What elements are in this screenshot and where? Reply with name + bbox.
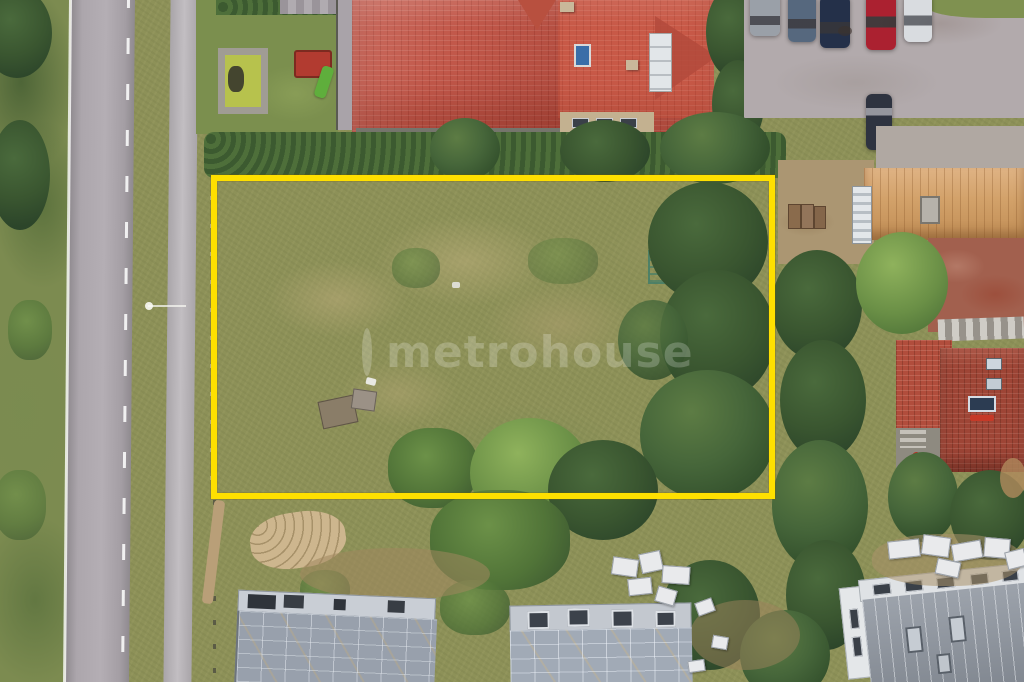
building-material-stack	[638, 550, 664, 574]
chimney	[560, 2, 574, 12]
roof-slope	[234, 611, 437, 682]
parked-car-silver	[750, 0, 780, 36]
watermark-text: metrohouse	[386, 327, 694, 378]
gravel-dark-spot	[838, 26, 852, 36]
paver-strip	[280, 0, 338, 14]
construction-building-left	[234, 590, 438, 682]
building-material-stack	[661, 565, 690, 585]
dry-shrub	[1000, 458, 1024, 498]
watermark: metrohouse	[362, 326, 662, 378]
roof-opening	[333, 599, 345, 611]
sidewalk-path	[163, 0, 198, 682]
roof-window	[986, 378, 1002, 390]
pallet-stack	[801, 204, 814, 229]
bush	[8, 300, 52, 360]
parked-car-white	[904, 0, 932, 42]
wall-window	[872, 583, 891, 596]
bush	[0, 470, 46, 540]
roof-slope	[510, 627, 693, 682]
orange-roof-house	[864, 168, 1024, 240]
roof-window	[527, 611, 549, 629]
building-material-stack	[1004, 548, 1024, 570]
roof-window	[567, 608, 589, 626]
patio-steps	[900, 430, 926, 448]
pallet-stack	[788, 204, 801, 229]
gravel-strip	[876, 126, 1024, 170]
building-material-stack	[611, 556, 639, 577]
parked-car-red	[866, 0, 896, 50]
parked-car-slate	[788, 0, 816, 42]
parked-car-navy	[820, 0, 850, 48]
chimney	[626, 60, 638, 70]
wall-window	[849, 608, 860, 629]
building-material-stack	[921, 534, 952, 558]
roof-opening	[247, 594, 276, 609]
roof-solar-panels	[649, 33, 672, 92]
roof-opening	[387, 600, 405, 613]
pallet-stack	[814, 206, 826, 229]
building-material-stack	[627, 577, 653, 596]
roof-window	[655, 611, 675, 627]
aerial-photo: metrohouse	[0, 0, 1024, 682]
large-tree	[856, 232, 948, 334]
dirt-patch	[300, 548, 490, 600]
watermark-ring-logo	[362, 328, 372, 376]
winter-garden	[852, 186, 872, 244]
chimney	[920, 196, 940, 224]
roof-opening	[284, 595, 305, 609]
tree	[888, 452, 958, 542]
roof-skylight	[936, 653, 952, 674]
construction-building-middle	[509, 602, 694, 682]
pond-dark-water	[228, 66, 244, 92]
roof-window	[611, 609, 633, 627]
roof-hip-shade	[352, 0, 560, 132]
tree	[560, 120, 650, 182]
tree	[660, 112, 770, 184]
roof-solar-panel	[968, 396, 996, 412]
roof-skylight	[905, 626, 924, 654]
red-roof-object	[970, 415, 994, 421]
building-material-sheet	[687, 659, 706, 673]
tree	[430, 118, 500, 180]
street-lamp-head	[145, 302, 153, 310]
roof-window	[986, 358, 1002, 370]
roof-skylight	[574, 44, 591, 67]
dirt-path	[202, 500, 226, 605]
building-material-stack	[887, 538, 921, 559]
building-material-sheet	[711, 635, 729, 651]
street-lamp	[148, 305, 186, 307]
roof-skylight	[948, 615, 967, 643]
paver-walkway	[938, 317, 1024, 342]
